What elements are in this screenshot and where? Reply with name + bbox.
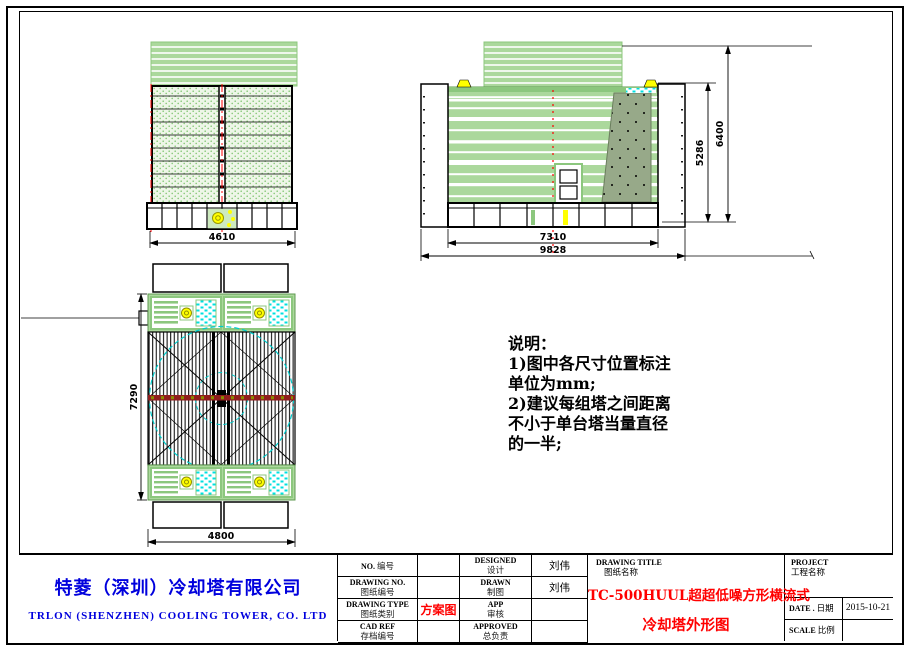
pump-dot	[228, 210, 232, 214]
motor-bay	[224, 297, 292, 329]
plan-end-casing-top	[224, 264, 288, 292]
field-no-label: NO. 编号	[338, 555, 418, 577]
basin-yellow-stripe	[563, 210, 568, 225]
field-drawing-type-label: DRAWING TYPE 图纸类别	[338, 599, 418, 621]
scale-row: SCALE比例	[785, 620, 893, 641]
field-drawing-no-value	[418, 577, 460, 599]
dim-side-body-height: 5286	[695, 139, 706, 166]
dim-front-width: 4610	[209, 232, 236, 243]
scale-value	[843, 620, 893, 641]
front-fill-louver-top	[151, 42, 297, 86]
pump-dot	[231, 217, 235, 221]
field-designed-value: 刘伟	[532, 555, 588, 577]
motor-bay	[151, 468, 221, 497]
title-block: 特菱（深圳）冷却塔有限公司 TRLON (SHENZHEN) COOLING T…	[19, 553, 893, 641]
brand-strip	[626, 88, 656, 93]
dim-plan-depth: 7290	[129, 383, 140, 410]
motor-bay	[151, 297, 221, 329]
motor-symbol	[255, 308, 265, 318]
company-name-en: TRLON (SHENZHEN) COOLING TOWER, CO. LTD	[29, 610, 328, 622]
plan-end-casing-bottom	[153, 502, 221, 528]
drawing-title-label: DRAWING TITLE 图纸名称	[596, 558, 662, 577]
field-cad-ref-value	[418, 621, 460, 643]
basin-green-stripe	[531, 210, 535, 225]
company-block: 特菱（深圳）冷却塔有限公司 TRLON (SHENZHEN) COOLING T…	[19, 555, 338, 641]
field-app-value	[532, 599, 588, 621]
date-value: 2015-10-21	[843, 598, 893, 619]
notes-line: 1)图中各尺寸位置标注	[508, 354, 728, 374]
field-cad-ref-label: CAD REF 存档编号	[338, 621, 418, 643]
motor-symbol	[255, 477, 265, 487]
notes-line: 不小于单台塔当量直径	[508, 414, 728, 434]
access-door-panel	[560, 170, 577, 183]
field-drawn-value: 刘伟	[532, 577, 588, 599]
motor-symbol	[182, 477, 192, 487]
roof-fitting	[644, 80, 658, 87]
side-end-column-left	[421, 84, 448, 227]
front-view: 4610	[147, 42, 297, 248]
notes-line: 2)建议每组塔之间距离	[508, 394, 728, 414]
drawing-title-line1: TC-500HUUL超超低噪方形横流式	[588, 584, 784, 604]
notes-title: 说明：	[508, 334, 728, 354]
drawing-sheet: 4610	[0, 0, 912, 652]
plan-side-fitting	[139, 311, 148, 325]
notes-line: 的一半;	[508, 434, 728, 454]
field-no-value	[418, 555, 460, 577]
plan-view: 7290 4800	[21, 264, 295, 547]
roof-fitting	[457, 80, 471, 87]
dim-plan-width: 4800	[208, 531, 235, 542]
dim-side-casing-width: 7310	[540, 232, 567, 243]
dim-side-overall-width: 9828	[540, 245, 567, 256]
field-app-label: APP 审核	[460, 599, 532, 621]
access-door-panel	[560, 186, 577, 199]
plan-end-casing-bottom	[224, 502, 288, 528]
notes-line: 单位为mm;	[508, 374, 728, 394]
drawing-title-line2: 冷却塔外形图	[588, 614, 784, 635]
field-drawn-label: DRAWN 制图	[460, 577, 532, 599]
scale-label: SCALE比例	[785, 620, 843, 641]
field-drawing-type-value: 方案图	[418, 599, 460, 621]
field-drawing-no-label: DRAWING NO. 图纸编号	[338, 577, 418, 599]
company-name-cn: 特菱（深圳）冷却塔有限公司	[55, 574, 302, 600]
dim-side-overall-height: 6400	[715, 120, 726, 147]
motor-bay	[224, 468, 292, 497]
field-approved-label: APPROVED 总负责	[460, 621, 532, 643]
side-fan-stack	[484, 42, 622, 87]
notes-block: 说明： 1)图中各尺寸位置标注 单位为mm; 2)建议每组塔之间距离 不小于单台…	[508, 334, 728, 454]
title-block-grid: NO. 编号 DESIGNED 设计 刘伟 DRAWING NO. 图纸编号 D…	[338, 555, 588, 641]
pump-dot	[227, 223, 231, 227]
plan-end-casing-top	[153, 264, 221, 292]
field-approved-value	[532, 621, 588, 643]
field-designed-label: DESIGNED 设计	[460, 555, 532, 577]
pump-symbol	[213, 213, 224, 224]
motor-symbol	[182, 308, 192, 318]
drawing-title-section: DRAWING TITLE 图纸名称 TC-500HUUL超超低噪方形横流式 冷…	[588, 555, 785, 641]
side-end-column-right	[658, 84, 685, 227]
side-view: 7310 9828 5286 6400	[421, 42, 814, 261]
